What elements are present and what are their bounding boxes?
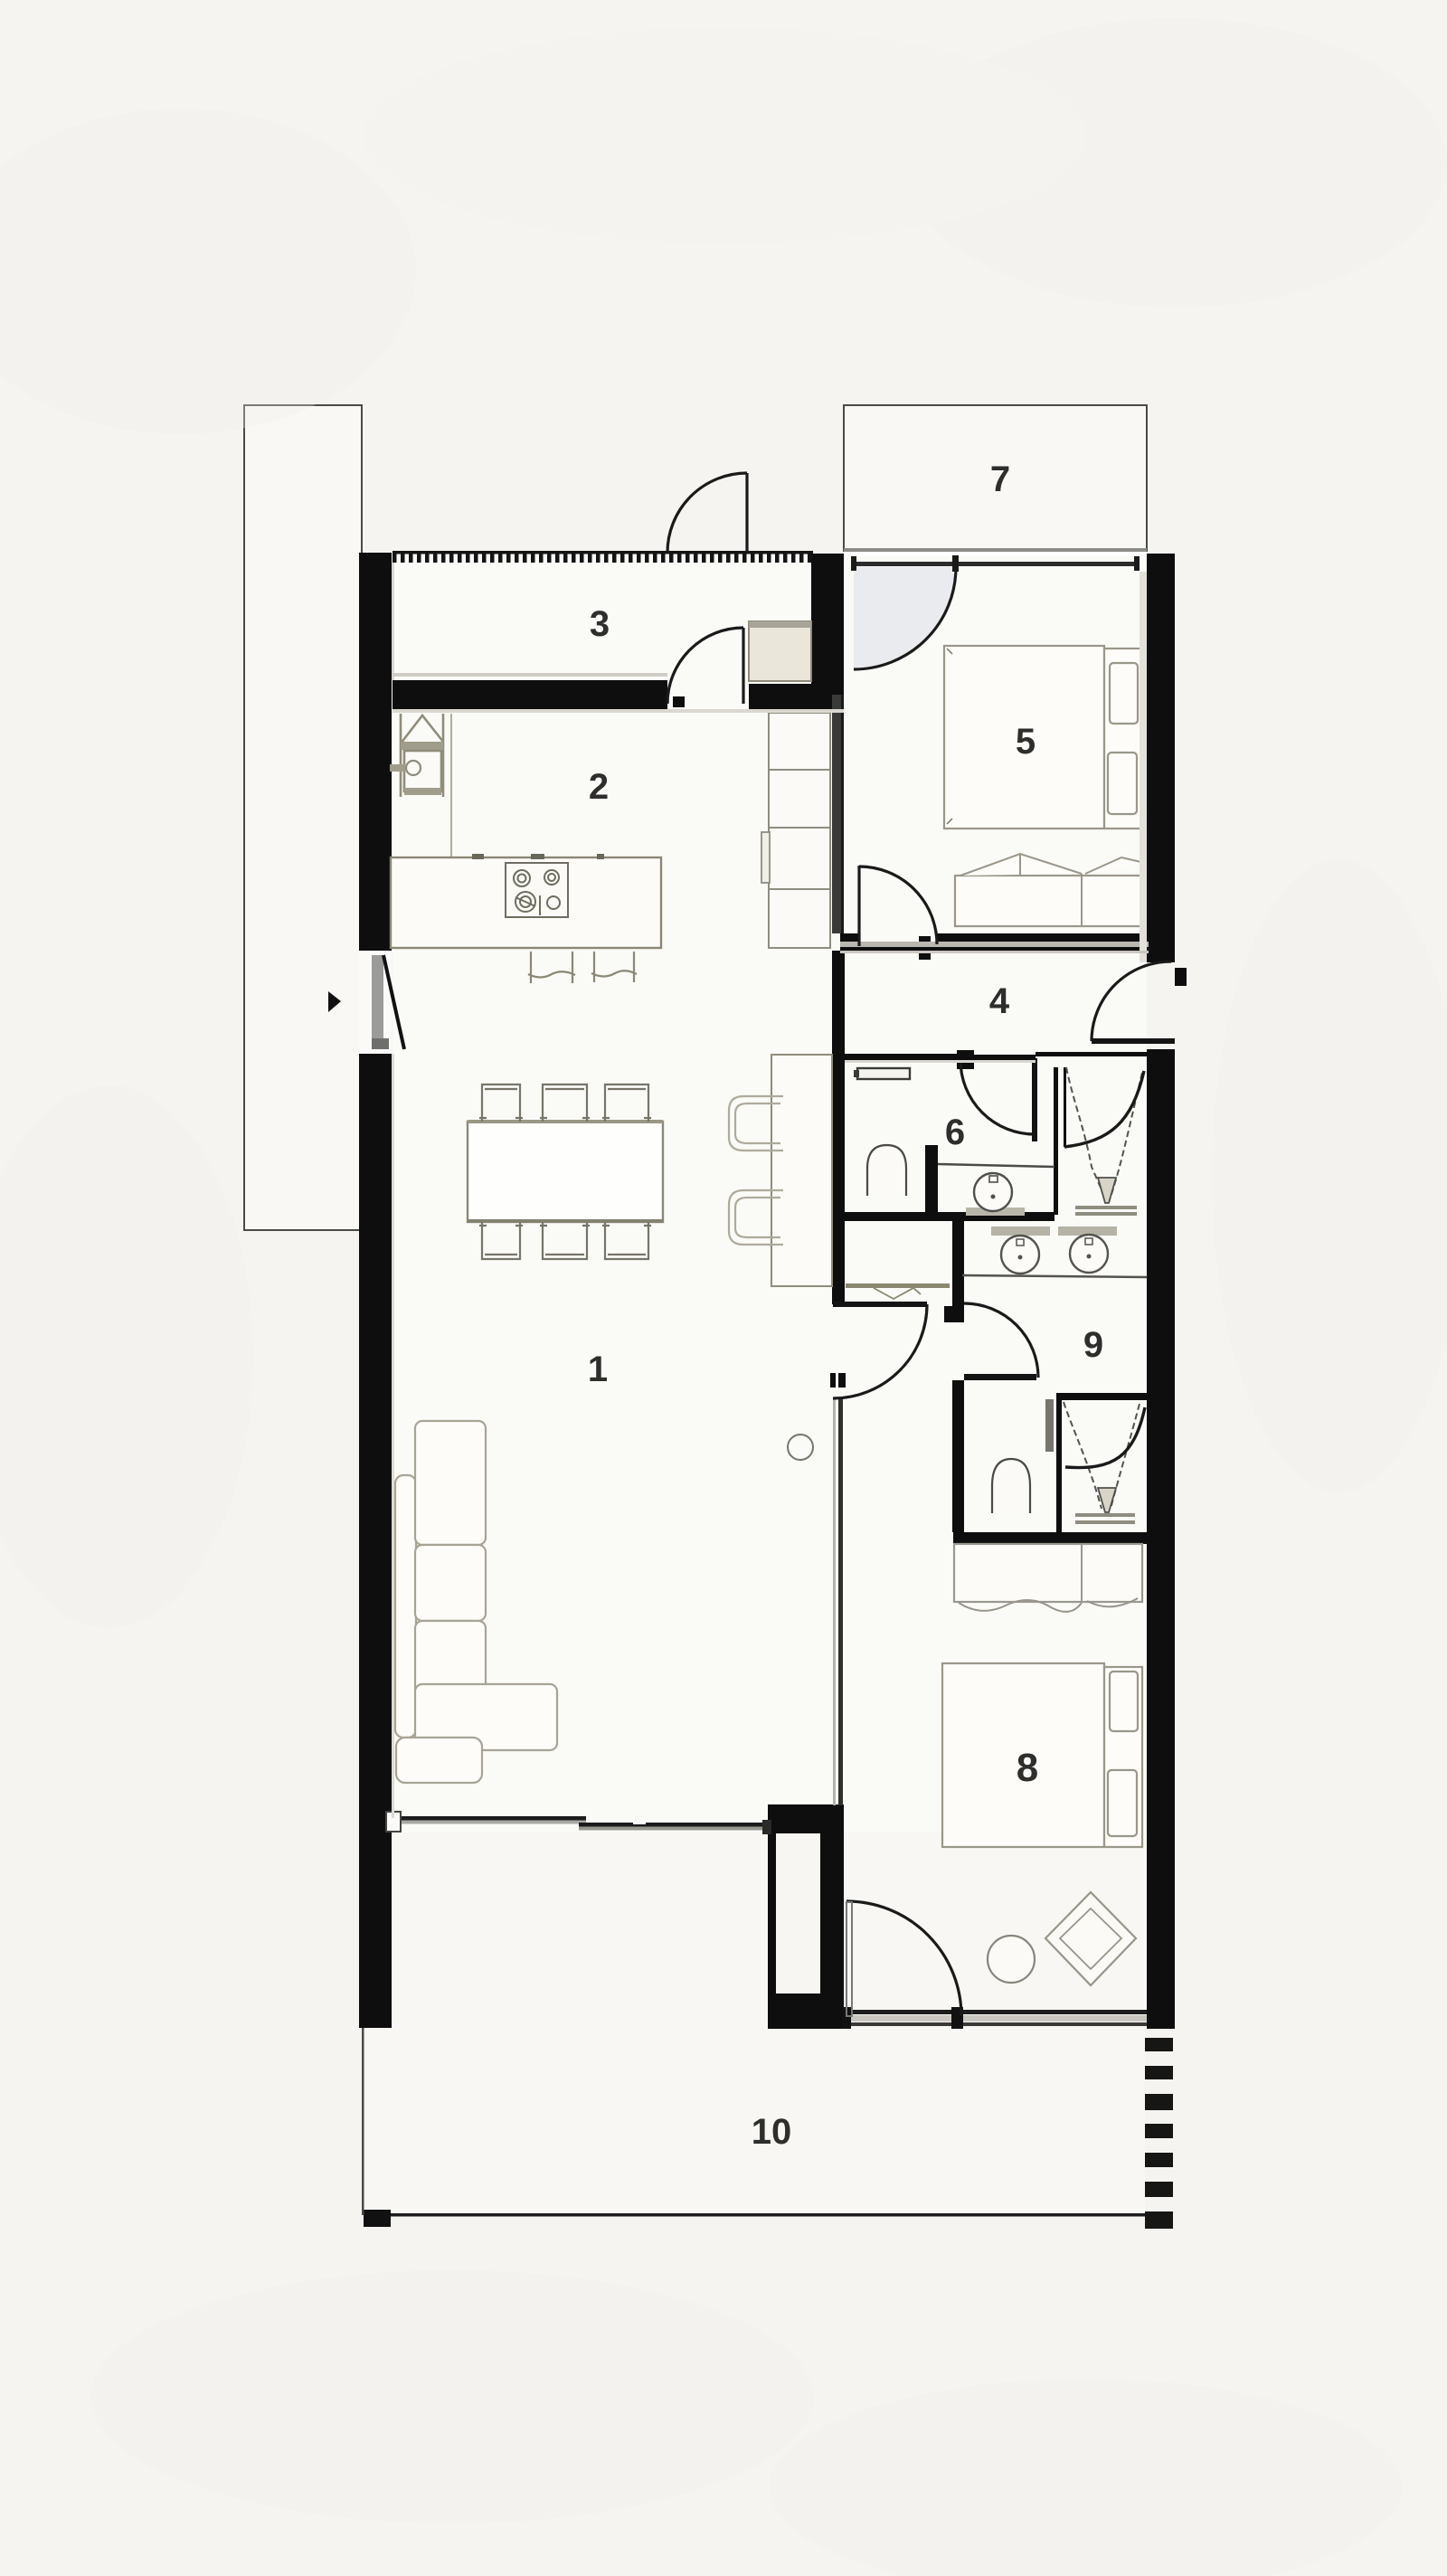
svg-text:4: 4: [989, 981, 1010, 1021]
svg-text:9: 9: [1083, 1325, 1103, 1365]
svg-text:5: 5: [1016, 722, 1036, 762]
svg-text:7: 7: [990, 459, 1010, 499]
svg-text:2: 2: [589, 767, 609, 807]
svg-text:1: 1: [588, 1350, 608, 1389]
svg-text:3: 3: [590, 604, 610, 644]
svg-text:8: 8: [1017, 1746, 1038, 1790]
svg-text:10: 10: [752, 2112, 792, 2152]
svg-text:6: 6: [945, 1113, 965, 1152]
